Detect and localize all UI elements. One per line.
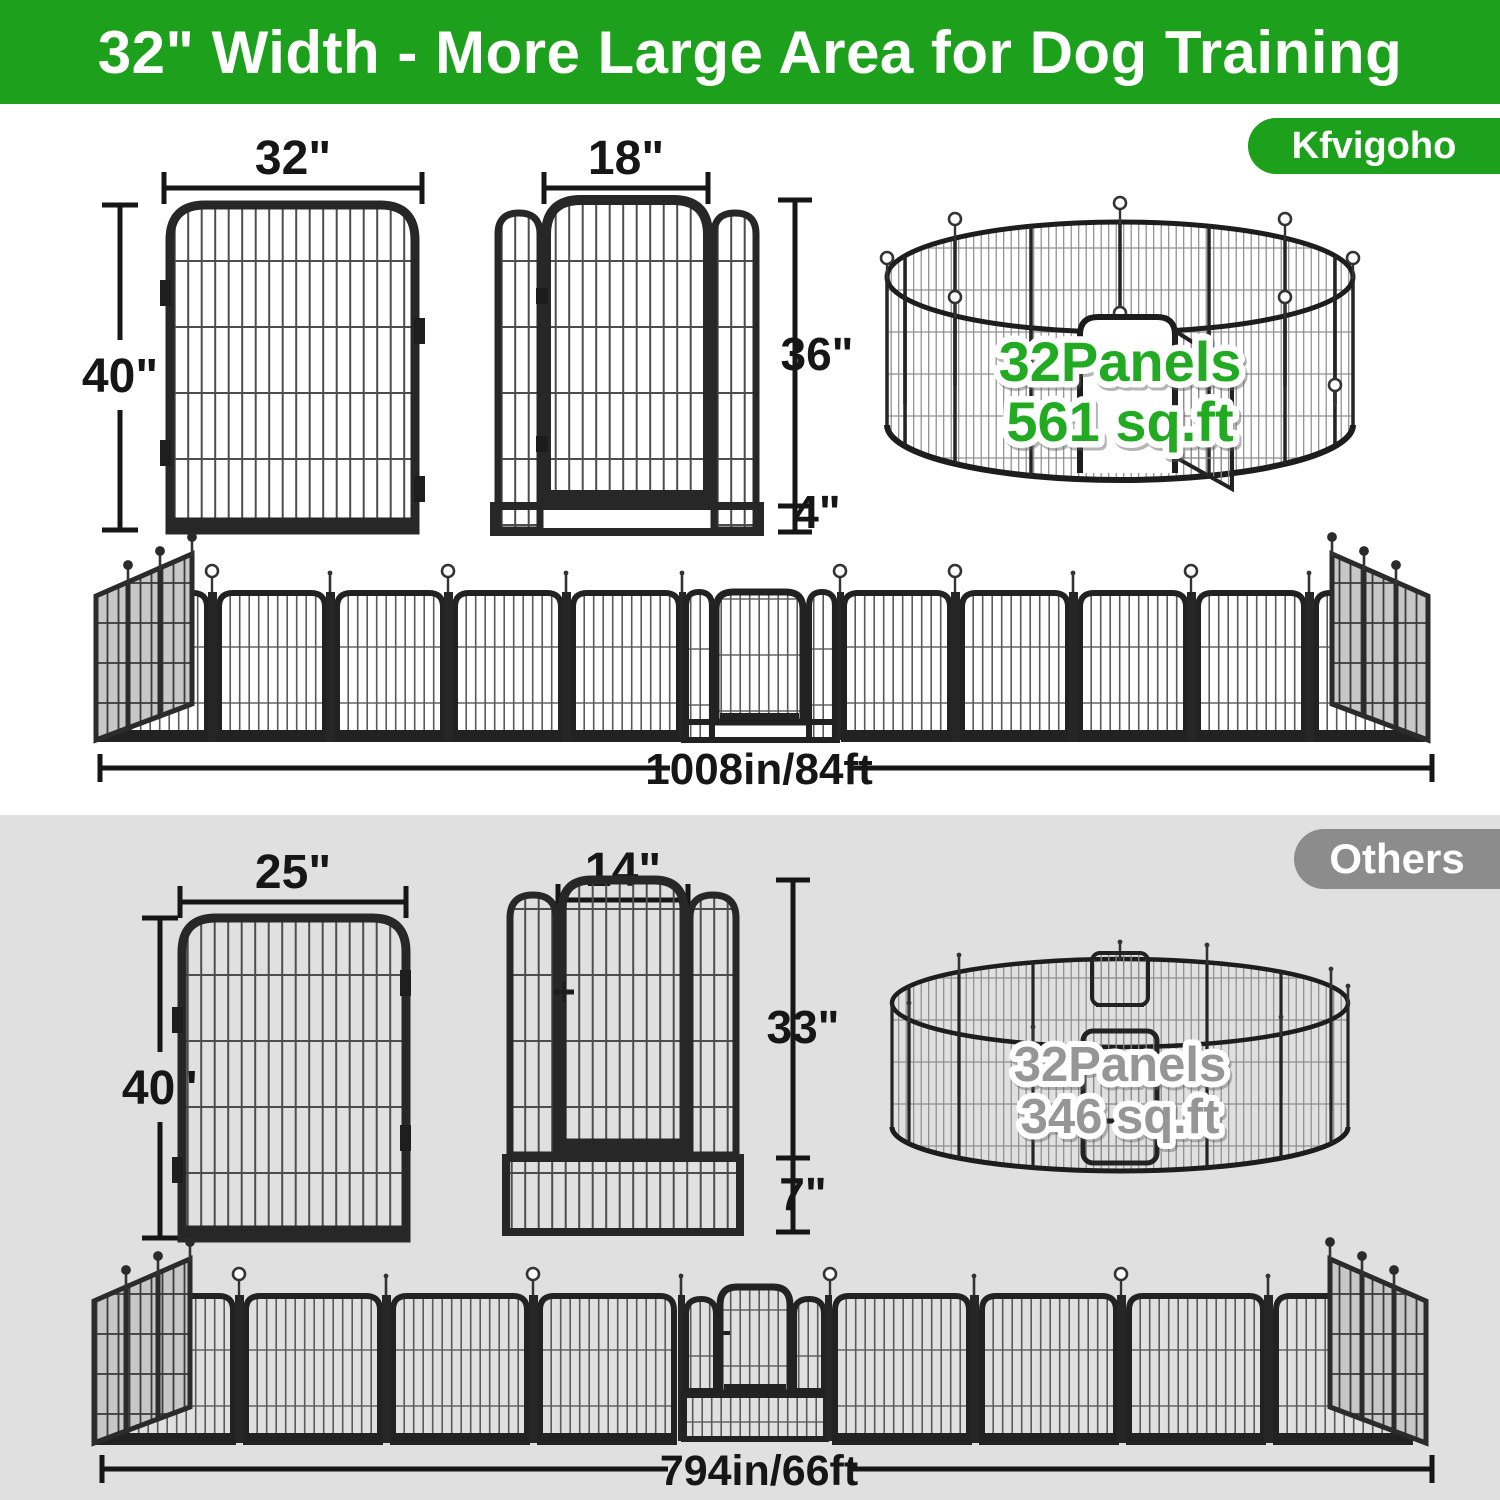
row-door <box>710 592 803 722</box>
kfvigoho-door-diagram: 18" 36" 4" <box>468 128 908 560</box>
panel-drawing <box>160 205 425 530</box>
panel-width-label: 25" <box>255 846 331 899</box>
row-length-label: 1008in/84ft <box>645 745 873 794</box>
panel-height-label: 40" <box>82 350 158 403</box>
ground-gap-label: 4" <box>793 486 840 538</box>
door-panel-drawing <box>506 880 740 1232</box>
row-panels <box>101 565 1422 742</box>
brand-badge-label: Kfvigoho <box>1292 125 1457 168</box>
row-corner-left <box>94 1240 192 1443</box>
others-badge-label: Others <box>1329 835 1464 883</box>
banner: 32" Width - More Large Area for Dog Trai… <box>0 0 1500 104</box>
kfvigoho-pen-illustration: 32Panels 561 sq.ft <box>880 205 1380 545</box>
door-height-label: 36" <box>781 328 854 380</box>
panel-drawing <box>172 918 411 1238</box>
others-pen-illustration: 32Panels 346 sq.ft <box>880 935 1380 1215</box>
kfvigoho-panel-diagram: 32" 40" <box>60 128 480 560</box>
kfvigoho-row-illustration: 1008in/84ft <box>80 542 1475 797</box>
brand-badge: Kfvigoho <box>1248 118 1500 174</box>
panel-width-label: 32" <box>255 132 331 185</box>
others-row-illustration: 794in/66ft <box>80 1253 1475 1500</box>
row-panels <box>99 1268 1410 1443</box>
pen-area-label: 561 sq.ft <box>1006 390 1233 453</box>
door-height-label: 33" <box>767 1001 840 1053</box>
row-corner-left <box>96 535 194 740</box>
door-panel-drawing <box>494 200 760 532</box>
pen-back-door <box>1092 953 1148 1005</box>
product-infographic: 32" Width - More Large Area for Dog Trai… <box>0 0 1500 1500</box>
door-width-label: 18" <box>588 132 664 185</box>
row-door <box>714 1287 790 1393</box>
banner-title: 32" Width - More Large Area for Dog Trai… <box>98 18 1402 87</box>
pen-panels-label: 32Panels <box>999 330 1242 393</box>
others-door-diagram: 14" 33" 7" <box>478 842 908 1272</box>
pen-area-label: 346 sq.ft <box>1021 1090 1220 1144</box>
others-panel-diagram: 25" 40" <box>100 842 520 1272</box>
pen-panels-label: 32Panels <box>1014 1038 1227 1092</box>
row-corner-right <box>1328 1240 1426 1443</box>
row-length-label: 794in/66ft <box>660 1447 858 1495</box>
bottom-height-label: 7" <box>779 1168 826 1220</box>
row-corner-right <box>1330 535 1428 740</box>
others-badge: Others <box>1294 829 1500 889</box>
